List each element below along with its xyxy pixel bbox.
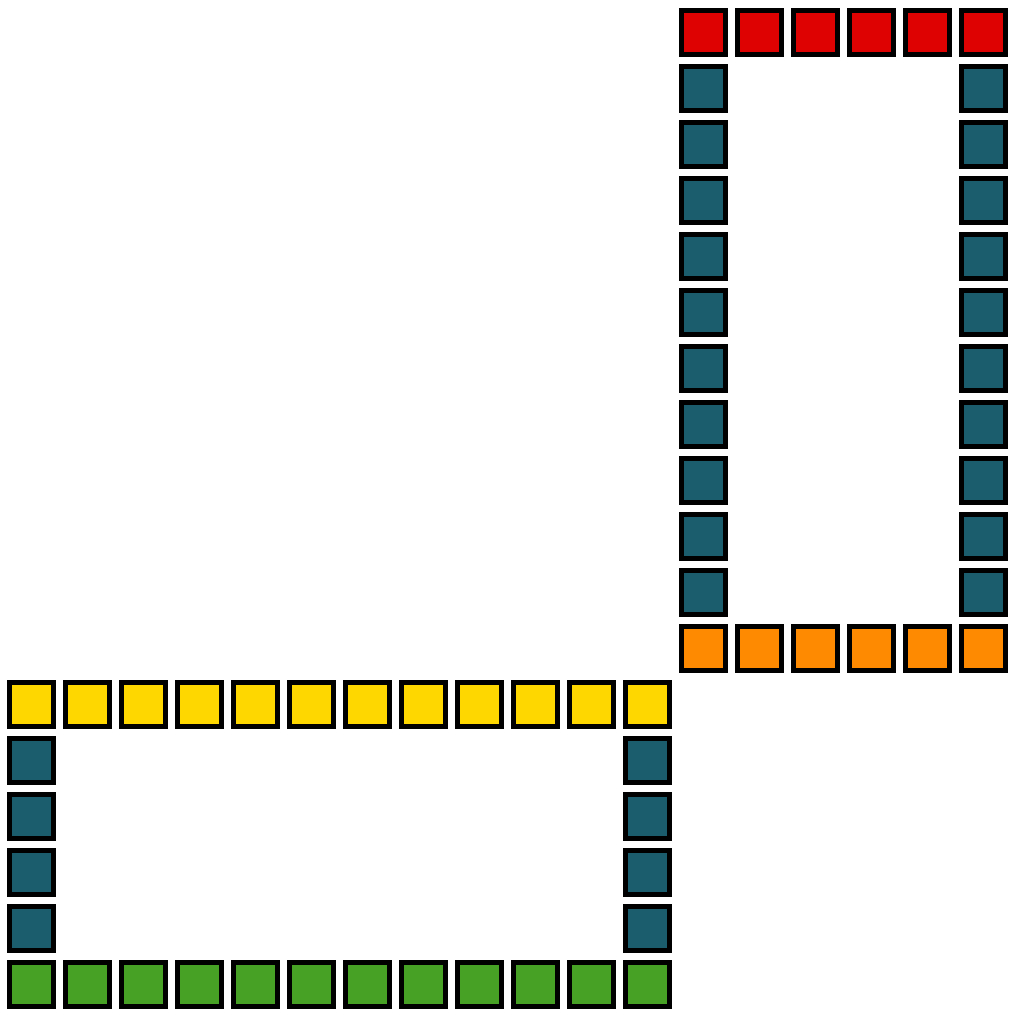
wide-frame-green-tile[interactable]: [287, 960, 336, 1009]
tall-frame-red-tile[interactable]: [903, 8, 952, 57]
wide-frame-green-tile[interactable]: [343, 960, 392, 1009]
tall-frame-orange-tile[interactable]: [847, 624, 896, 673]
wide-frame-teal-tile[interactable]: [7, 904, 56, 953]
wide-frame-green-tile[interactable]: [63, 960, 112, 1009]
tall-frame-teal-tile[interactable]: [959, 344, 1008, 393]
tall-frame-red-tile[interactable]: [959, 8, 1008, 57]
tall-frame-teal-tile[interactable]: [959, 512, 1008, 561]
wide-frame-green-tile[interactable]: [399, 960, 448, 1009]
wide-frame-yellow-tile[interactable]: [119, 680, 168, 729]
tall-frame-teal-tile[interactable]: [959, 232, 1008, 281]
wide-frame-teal-tile[interactable]: [623, 792, 672, 841]
wide-frame-yellow-tile[interactable]: [511, 680, 560, 729]
wide-frame-yellow-tile[interactable]: [343, 680, 392, 729]
tall-frame-teal-tile[interactable]: [679, 568, 728, 617]
board: [0, 0, 1016, 1016]
tall-frame-teal-tile[interactable]: [679, 456, 728, 505]
wide-frame-yellow-tile[interactable]: [623, 680, 672, 729]
wide-frame-teal-tile[interactable]: [623, 904, 672, 953]
wide-frame-yellow-tile[interactable]: [7, 680, 56, 729]
wide-frame-yellow-tile[interactable]: [455, 680, 504, 729]
tall-frame-teal-tile[interactable]: [959, 176, 1008, 225]
tall-frame-orange-tile[interactable]: [679, 624, 728, 673]
tall-frame-teal-tile[interactable]: [959, 120, 1008, 169]
wide-frame-yellow-tile[interactable]: [63, 680, 112, 729]
tall-frame-teal-tile[interactable]: [959, 400, 1008, 449]
wide-frame-teal-tile[interactable]: [7, 848, 56, 897]
wide-frame-yellow-tile[interactable]: [231, 680, 280, 729]
tall-frame-red-tile[interactable]: [847, 8, 896, 57]
tall-frame-teal-tile[interactable]: [679, 512, 728, 561]
wide-frame-teal-tile[interactable]: [7, 792, 56, 841]
tall-frame-teal-tile[interactable]: [679, 176, 728, 225]
wide-frame-green-tile[interactable]: [511, 960, 560, 1009]
wide-frame-green-tile[interactable]: [455, 960, 504, 1009]
wide-frame-green-tile[interactable]: [567, 960, 616, 1009]
tall-frame-teal-tile[interactable]: [679, 288, 728, 337]
wide-frame-yellow-tile[interactable]: [287, 680, 336, 729]
wide-frame-green-tile[interactable]: [119, 960, 168, 1009]
wide-frame-teal-tile[interactable]: [623, 736, 672, 785]
wide-frame-teal-tile[interactable]: [7, 736, 56, 785]
tall-frame-red-tile[interactable]: [791, 8, 840, 57]
wide-frame-teal-tile[interactable]: [623, 848, 672, 897]
tall-frame-teal-tile[interactable]: [959, 456, 1008, 505]
wide-frame-green-tile[interactable]: [175, 960, 224, 1009]
tall-frame-orange-tile[interactable]: [903, 624, 952, 673]
tall-frame-teal-tile[interactable]: [679, 232, 728, 281]
tall-frame-orange-tile[interactable]: [959, 624, 1008, 673]
wide-frame-yellow-tile[interactable]: [399, 680, 448, 729]
tall-frame-teal-tile[interactable]: [679, 64, 728, 113]
tall-frame-teal-tile[interactable]: [959, 568, 1008, 617]
wide-frame-yellow-tile[interactable]: [567, 680, 616, 729]
tall-frame-teal-tile[interactable]: [959, 64, 1008, 113]
tall-frame-teal-tile[interactable]: [959, 288, 1008, 337]
tall-frame-teal-tile[interactable]: [679, 344, 728, 393]
tall-frame-red-tile[interactable]: [679, 8, 728, 57]
tall-frame-teal-tile[interactable]: [679, 120, 728, 169]
wide-frame-yellow-tile[interactable]: [175, 680, 224, 729]
wide-frame-green-tile[interactable]: [623, 960, 672, 1009]
tall-frame-orange-tile[interactable]: [735, 624, 784, 673]
tall-frame-teal-tile[interactable]: [679, 400, 728, 449]
wide-frame-green-tile[interactable]: [7, 960, 56, 1009]
tall-frame-red-tile[interactable]: [735, 8, 784, 57]
tall-frame-orange-tile[interactable]: [791, 624, 840, 673]
wide-frame-green-tile[interactable]: [231, 960, 280, 1009]
